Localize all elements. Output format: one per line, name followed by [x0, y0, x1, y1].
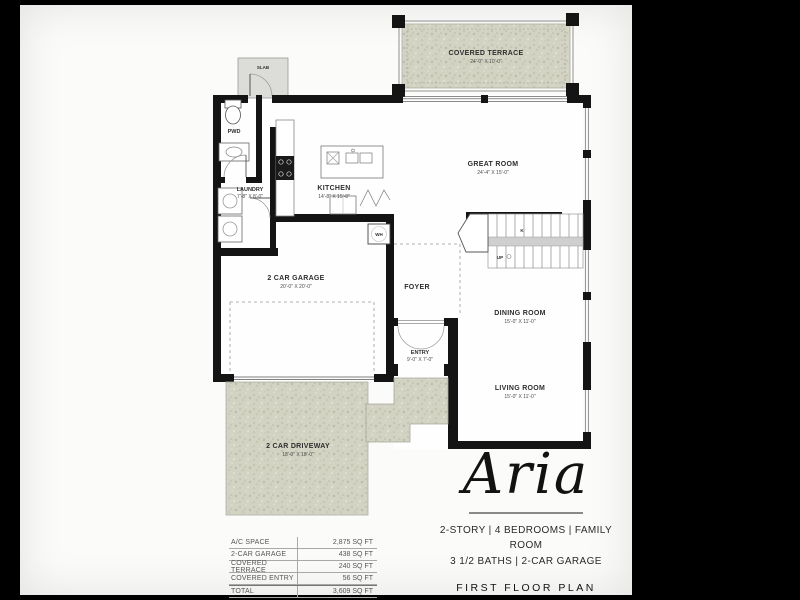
covered-terrace-label: COVERED TERRACE — [449, 50, 524, 57]
area-value: 2,875 SQ FT — [297, 537, 377, 548]
table-row: COVERED TERRACE 240 SQ FT — [229, 561, 377, 573]
toilet-bowl — [226, 106, 241, 124]
dryer-door — [223, 222, 237, 236]
terrace-post — [566, 83, 579, 96]
floor-plan-drawing: COVERED TERRACE 24'-0" X 10'-0" GREAT RO… — [0, 0, 800, 600]
stairs-up-label: UP — [497, 255, 503, 260]
area-label: A/C SPACE — [229, 537, 297, 548]
slab-label: SLAB — [257, 65, 270, 70]
area-value: 438 SQ FT — [297, 549, 377, 560]
area-value: 3,609 SQ FT — [297, 586, 377, 597]
driveway-label: 2 CAR DRIVEWAY — [266, 443, 330, 450]
slab-pad — [238, 58, 288, 98]
entry-label: ENTRY — [411, 350, 430, 356]
area-summary-table: A/C SPACE 2,875 SQ FT 2-CAR GARAGE 438 S… — [229, 537, 377, 598]
area-label: COVERED ENTRY — [229, 573, 297, 584]
brand-block: Aria 2-STORY | 4 BEDROOMS | FAMILY ROOM … — [428, 446, 624, 594]
area-label: 2-CAR GARAGE — [229, 549, 297, 560]
brand-divider — [469, 512, 583, 514]
area-value: 240 SQ FT — [297, 561, 377, 572]
garage-label: 2 CAR GARAGE — [267, 275, 324, 282]
laundry-label: LAUNDRY — [237, 187, 264, 193]
table-row: A/C SPACE 2,875 SQ FT — [229, 537, 377, 549]
range — [276, 156, 294, 180]
features-line-2: 3 1/2 BATHS | 2-CAR GARAGE — [428, 554, 624, 570]
entry-dims: 9'-0" X 7'-0" — [407, 357, 433, 363]
living-room-label: LIVING ROOM — [495, 385, 545, 392]
garage-dims: 20'-0" X 20'-0" — [280, 284, 312, 290]
area-label: COVERED TERRACE — [229, 561, 297, 572]
living-room-dims: 15'-0" X 11'-0" — [504, 394, 535, 400]
sink-basin — [226, 147, 242, 157]
terrace-post — [392, 15, 405, 28]
kitchen-dims: 14'-8" X 15'-8" — [318, 194, 350, 200]
dining-room-dims: 15'-0" X 11'-0" — [504, 319, 535, 325]
kitchen-label: KITCHEN — [317, 185, 350, 192]
features-line-1: 2-STORY | 4 BEDROOMS | FAMILY ROOM — [428, 523, 624, 554]
foyer-label: FOYER — [404, 284, 430, 291]
great-room-label: GREAT ROOM — [468, 161, 519, 168]
plan-title: FIRST FLOOR PLAN — [428, 582, 624, 594]
island — [321, 146, 383, 178]
area-label: TOTAL — [229, 586, 297, 597]
great-room-dims: 24'-4" X 15'-0" — [477, 170, 509, 176]
table-row-total: TOTAL 3,609 SQ FT — [229, 585, 377, 598]
table-row: COVERED ENTRY 56 SQ FT — [229, 573, 377, 585]
area-value: 56 SQ FT — [297, 573, 377, 584]
pwd-label: PWD — [228, 129, 241, 135]
laundry-dims: 7'-8" X 8'-0" — [237, 194, 263, 200]
covered-terrace-dims: 24'-0" X 10'-0" — [470, 59, 502, 65]
screenshot-canvas: COVERED TERRACE 24'-0" X 10'-0" GREAT RO… — [0, 0, 800, 600]
terrace-post — [566, 13, 579, 26]
washer-door — [223, 194, 237, 208]
driveway-dims: 18'-0" X 18'-0" — [282, 452, 314, 458]
dining-room-label: DINING ROOM — [494, 310, 546, 317]
brand-logo: Aria — [428, 446, 624, 505]
wh-label: WH — [375, 232, 383, 237]
stair-landing — [488, 237, 583, 246]
